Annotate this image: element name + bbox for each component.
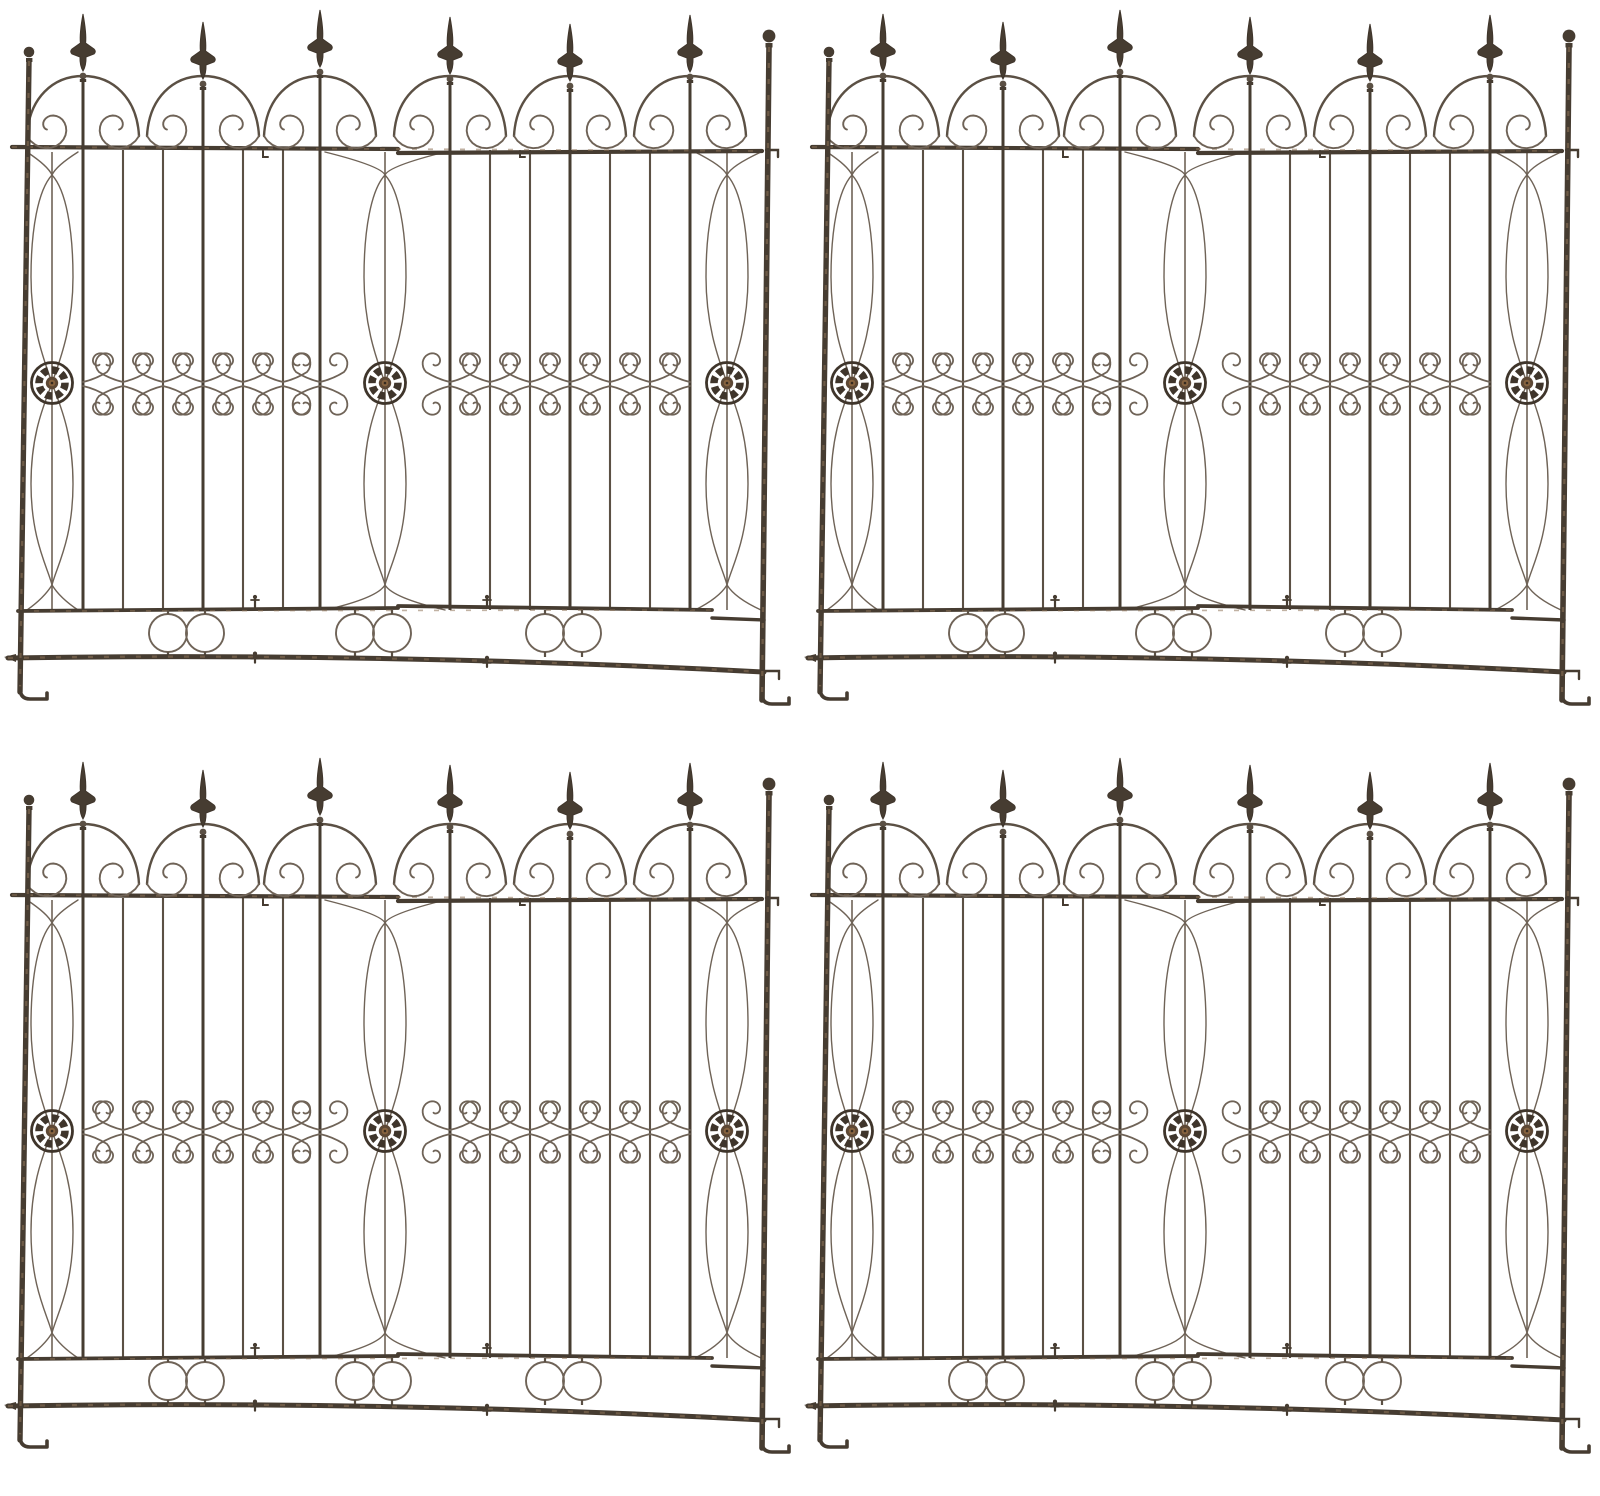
- ring-ornament: [526, 1358, 601, 1405]
- spear-finial: [871, 762, 896, 1358]
- ground-rail: [4, 654, 764, 672]
- rosette-medallion: [32, 363, 73, 404]
- spear-finial: [308, 758, 333, 1358]
- ring-ornament: [149, 1358, 224, 1405]
- spear-finial: [308, 10, 333, 610]
- product-photo-grid: [0, 0, 1600, 1496]
- right-post: [762, 778, 789, 1452]
- scroll-ornament: [83, 353, 110, 414]
- spear-finial: [1358, 772, 1383, 1358]
- spear-finial: [191, 770, 216, 1358]
- ring-ornament: [949, 1358, 1024, 1405]
- rosette-medallion: [707, 363, 748, 404]
- ring-ornament: [1136, 610, 1211, 657]
- spear-finial: [871, 14, 896, 610]
- ring-ornament: [1326, 610, 1401, 657]
- ground-rail: [4, 1402, 764, 1420]
- ground-rail: [804, 1402, 1564, 1420]
- spear-finial: [71, 14, 96, 610]
- scroll-ornament: [663, 1101, 690, 1162]
- scroll-ornament: [1463, 1101, 1490, 1162]
- spear-finial: [71, 762, 96, 1358]
- spear-finial: [1478, 763, 1503, 1358]
- spear-finial: [1108, 758, 1133, 1358]
- spear-finial: [1358, 24, 1383, 610]
- spear-finial: [1478, 15, 1503, 610]
- fence-panel-photo-1: [0, 0, 800, 748]
- spear-finial: [1238, 765, 1263, 1358]
- right-post: [762, 30, 789, 704]
- right-post: [1562, 778, 1589, 1452]
- ring-ornament: [336, 610, 411, 657]
- rosette-medallion: [832, 1111, 873, 1152]
- scroll-ornament: [883, 353, 910, 414]
- fence-panel-photo-2: [800, 0, 1600, 748]
- spear-finial: [191, 22, 216, 610]
- ground-rail: [804, 654, 1564, 672]
- scroll-ornament: [83, 1101, 110, 1162]
- spear-finial: [1108, 10, 1133, 610]
- ring-ornament: [949, 610, 1024, 657]
- rosette-medallion: [707, 1111, 748, 1152]
- spear-finial: [991, 22, 1016, 610]
- spear-finial: [991, 770, 1016, 1358]
- fence-panel: [4, 10, 789, 704]
- spear-finial: [558, 772, 583, 1358]
- rosette-medallion: [1165, 363, 1206, 404]
- rosette-medallion: [1507, 363, 1548, 404]
- right-post: [1562, 30, 1589, 704]
- fence-panel-4: [800, 748, 1600, 1496]
- fence-panel-2: [800, 0, 1600, 748]
- fence-panel-photo-4: [800, 748, 1600, 1496]
- scroll-ornament: [883, 1101, 910, 1162]
- fence-panel-3: [0, 748, 800, 1496]
- spear-finial: [678, 763, 703, 1358]
- spear-finial: [678, 15, 703, 610]
- fence-panel-photo-3: [0, 748, 800, 1496]
- ring-ornament: [1326, 1358, 1401, 1405]
- ring-ornament: [1136, 1358, 1211, 1405]
- ring-ornament: [336, 1358, 411, 1405]
- ring-ornament: [526, 610, 601, 657]
- ring-ornament: [149, 610, 224, 657]
- rosette-medallion: [1507, 1111, 1548, 1152]
- rosette-medallion: [832, 363, 873, 404]
- spear-finial: [558, 24, 583, 610]
- fence-panel: [804, 10, 1589, 704]
- spear-finial: [438, 765, 463, 1358]
- spear-finial: [438, 17, 463, 610]
- fence-panel: [4, 758, 789, 1452]
- scroll-ornament: [663, 353, 690, 414]
- fence-panel: [804, 758, 1589, 1452]
- rosette-medallion: [1165, 1111, 1206, 1152]
- fence-panel-1: [0, 0, 800, 748]
- scroll-ornament: [1463, 353, 1490, 414]
- spear-finial: [1238, 17, 1263, 610]
- rosette-medallion: [32, 1111, 73, 1152]
- rosette-medallion: [365, 1111, 406, 1152]
- rosette-medallion: [365, 363, 406, 404]
